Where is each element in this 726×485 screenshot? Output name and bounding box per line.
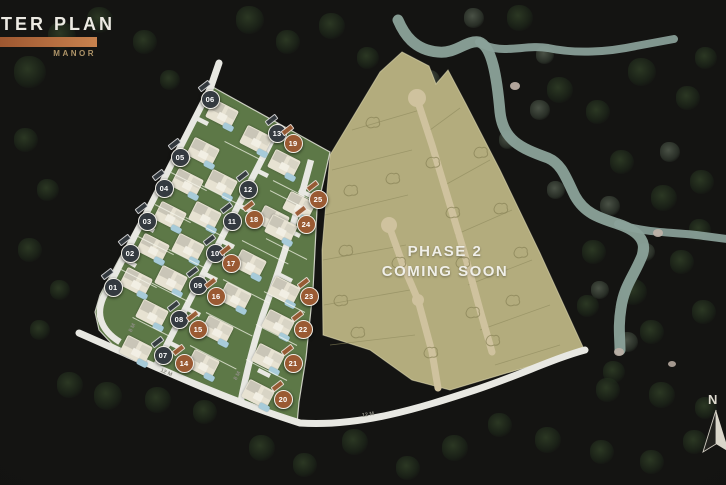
lot-number: 24 bbox=[302, 220, 311, 229]
lot-marker-19[interactable]: 19 bbox=[284, 134, 303, 153]
lot-marker-24[interactable]: 24 bbox=[297, 215, 316, 234]
river-rock bbox=[614, 348, 624, 356]
lot-number: 16 bbox=[212, 292, 221, 301]
lot-number: 05 bbox=[176, 153, 185, 162]
cul-de-sac bbox=[408, 89, 426, 107]
lot-number: 13 bbox=[273, 129, 282, 138]
cul-de-sac bbox=[412, 294, 424, 306]
lot-number: 11 bbox=[228, 217, 236, 226]
lot-marker-06[interactable]: 06 bbox=[201, 90, 220, 109]
lot-marker-23[interactable]: 23 bbox=[300, 287, 319, 306]
lot-marker-07[interactable]: 07 bbox=[154, 346, 173, 365]
lot-number: 12 bbox=[244, 185, 253, 194]
lot-number: 14 bbox=[180, 359, 189, 368]
brand-subtitle: MANOR bbox=[0, 49, 96, 58]
lot-number: 22 bbox=[299, 325, 308, 334]
lot-marker-18[interactable]: 18 bbox=[245, 210, 264, 229]
lot-number: 06 bbox=[206, 95, 215, 104]
lot-number: 23 bbox=[305, 292, 314, 301]
river-rock bbox=[668, 361, 676, 367]
river-branch-north bbox=[479, 39, 674, 52]
lot-number: 02 bbox=[126, 249, 135, 258]
lot-number: 18 bbox=[250, 215, 259, 224]
accent-bar bbox=[0, 37, 97, 47]
lot-number: 07 bbox=[159, 351, 168, 360]
lot-number: 25 bbox=[314, 195, 323, 204]
phase2-title: PHASE 2 bbox=[350, 243, 540, 260]
lot-marker-17[interactable]: 17 bbox=[222, 254, 241, 273]
lot-number: 21 bbox=[289, 359, 298, 368]
lot-number: 17 bbox=[227, 259, 236, 268]
lot-number: 03 bbox=[143, 217, 152, 226]
cul-de-sac bbox=[381, 217, 397, 233]
phase2-coming-soon-label: PHASE 2 COMING SOON bbox=[350, 243, 540, 280]
lot-number: 01 bbox=[109, 283, 118, 292]
compass-arrow-icon bbox=[698, 408, 726, 464]
lot-marker-20[interactable]: 20 bbox=[274, 390, 293, 409]
lot-marker-12[interactable]: 12 bbox=[239, 180, 258, 199]
entrance-road bbox=[209, 63, 219, 92]
lot-marker-11[interactable]: 11 bbox=[223, 212, 242, 231]
lot-marker-04[interactable]: 04 bbox=[155, 179, 174, 198]
lot-marker-15[interactable]: 15 bbox=[189, 320, 208, 339]
lot-number: 15 bbox=[194, 325, 203, 334]
lot-number: 20 bbox=[279, 395, 288, 404]
lot-number: 08 bbox=[175, 315, 184, 324]
compass: N bbox=[698, 392, 726, 462]
river-rock bbox=[653, 229, 663, 237]
lot-marker-21[interactable]: 21 bbox=[284, 354, 303, 373]
lot-number: 10 bbox=[211, 249, 220, 258]
lot-marker-22[interactable]: 22 bbox=[294, 320, 313, 339]
lot-marker-25[interactable]: 25 bbox=[309, 190, 328, 209]
river-rock bbox=[510, 82, 520, 90]
compass-north-label: N bbox=[708, 392, 717, 407]
lot-marker-16[interactable]: 16 bbox=[207, 287, 226, 306]
lot-number: 04 bbox=[160, 184, 169, 193]
phase2-area bbox=[322, 52, 583, 390]
lot-marker-03[interactable]: 03 bbox=[138, 212, 157, 231]
page-title: TER PLAN bbox=[1, 14, 115, 35]
master-plan-map[interactable]: 0102030405060708091011121314151617181920… bbox=[0, 0, 726, 485]
lot-number: 19 bbox=[289, 139, 298, 148]
lot-marker-05[interactable]: 05 bbox=[171, 148, 190, 167]
lot-marker-02[interactable]: 02 bbox=[121, 244, 140, 263]
phase2-subtitle: COMING SOON bbox=[350, 263, 540, 280]
lot-marker-14[interactable]: 14 bbox=[175, 354, 194, 373]
lot-number: 09 bbox=[194, 281, 203, 290]
lot-marker-01[interactable]: 01 bbox=[104, 278, 123, 297]
